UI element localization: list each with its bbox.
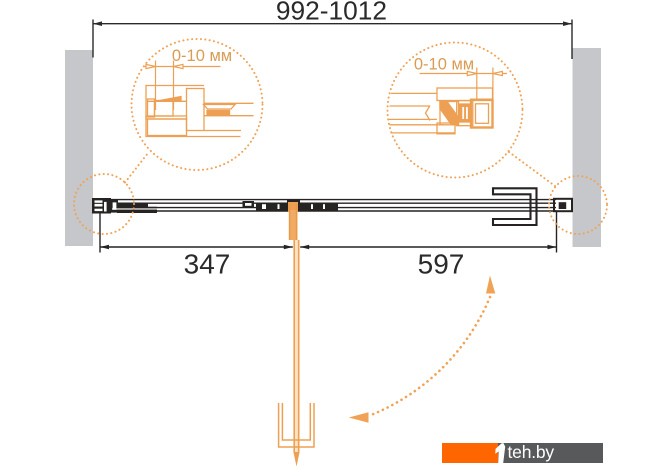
svg-text:347: 347 [184, 249, 231, 280]
svg-text:597: 597 [418, 249, 465, 280]
svg-text:992-1012: 992-1012 [276, 0, 387, 25]
svg-text:teh.by: teh.by [508, 442, 555, 462]
svg-text:0-10 мм: 0-10 мм [172, 47, 232, 65]
svg-text:0-10 мм: 0-10 мм [414, 56, 474, 74]
